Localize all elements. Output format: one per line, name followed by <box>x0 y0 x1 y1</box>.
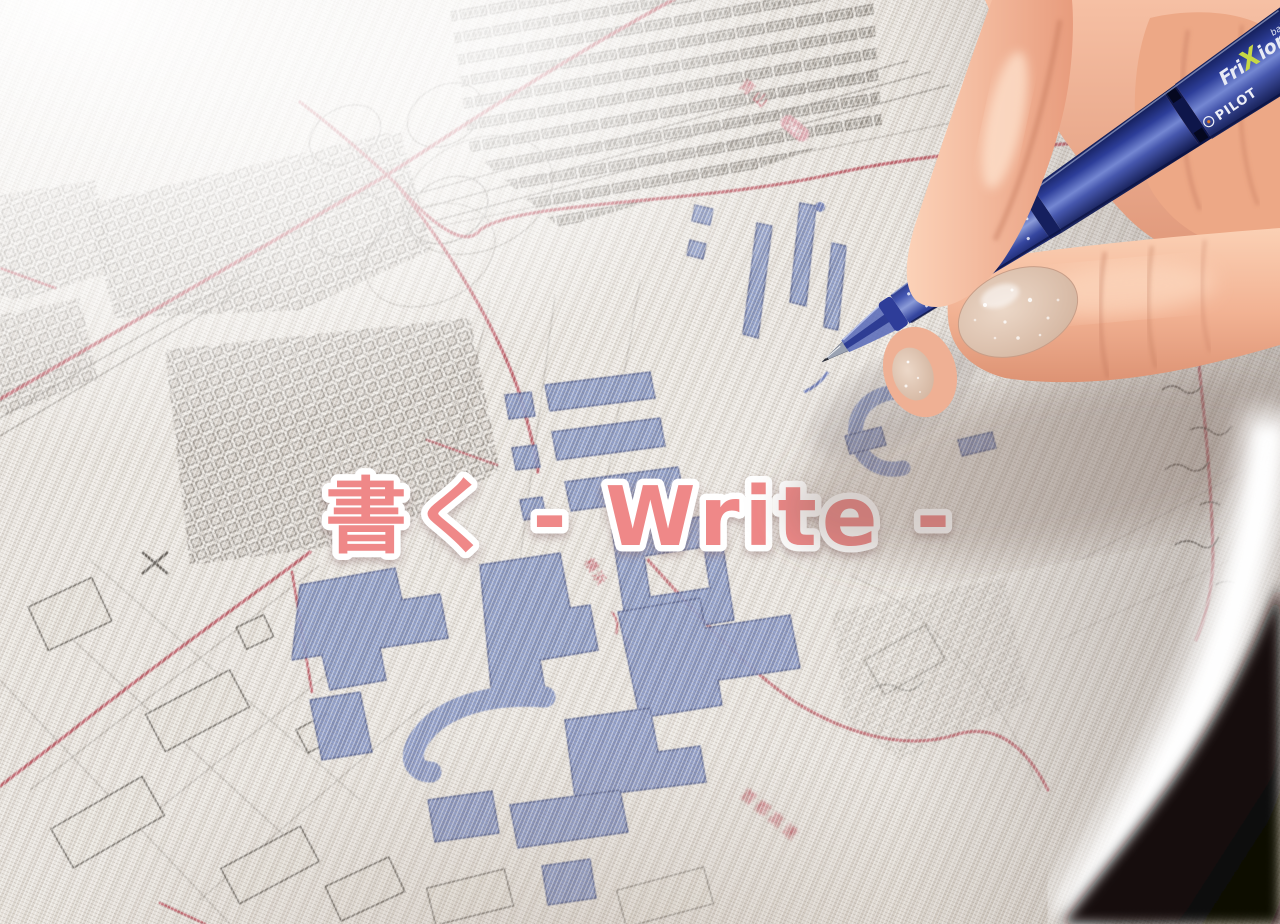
map-roads-red <box>0 0 1213 924</box>
photo-write-scene: 青山 246 横浜 首都高速 <box>0 0 1280 924</box>
lighting-overlay <box>0 0 1280 924</box>
hand-shadow <box>770 342 1280 593</box>
pen-grip-speckles <box>902 206 1041 316</box>
pen-collar <box>877 295 909 332</box>
map-outlined-buildings <box>28 552 945 924</box>
hand <box>872 0 1280 427</box>
pen-shadow <box>794 320 997 481</box>
nail-glitter <box>974 289 1060 340</box>
fabric-weave-texture <box>0 0 1280 924</box>
map-label-district: 横浜 <box>581 556 610 589</box>
dark-background-corner <box>1062 585 1280 924</box>
nail-glitter-small <box>905 361 922 393</box>
pen-model-frixion: FriXion <box>1211 22 1280 90</box>
pen-ring <box>1021 188 1063 241</box>
pen-tip-cone <box>837 305 897 359</box>
map-label-route-number: 246 <box>782 119 804 140</box>
thumb <box>907 0 1073 307</box>
index-finger <box>948 228 1280 382</box>
hand-and-pen: PILOT FriXion ball <box>0 0 1280 924</box>
index-finger-nail <box>945 250 1091 374</box>
map-colored-buildings-blue <box>292 202 996 905</box>
map-route-shield: 246 <box>778 112 812 144</box>
palm <box>985 0 1280 261</box>
map-red-labels: 青山 246 横浜 首都高速 <box>581 76 812 846</box>
fabric-background <box>0 0 1280 924</box>
fabric-edge <box>0 0 1280 924</box>
map-text-squiggles <box>870 337 1235 690</box>
folded-fingers <box>1135 12 1280 247</box>
map-label-route-area: 青山 <box>735 76 774 113</box>
title-overlay: 書く - Write - <box>0 0 1280 924</box>
pen-brand-pilot: PILOT <box>1213 85 1260 124</box>
map-building-clusters <box>0 0 1030 760</box>
pen-model-ball: ball <box>1269 21 1280 39</box>
middle-fingertip <box>872 317 969 427</box>
pen-dark-band <box>1164 85 1212 147</box>
pen-metal-tip <box>819 340 851 367</box>
pen-barrel <box>1030 93 1200 237</box>
pen-upper-barrel <box>1172 6 1280 143</box>
fold-highlight <box>1068 410 1272 924</box>
middle-finger-nail <box>886 342 941 406</box>
page-title: 書く - Write - <box>325 470 955 565</box>
pilot-logo-icon <box>1202 115 1216 129</box>
pen-grip <box>885 196 1050 331</box>
map-print: 青山 246 横浜 首都高速 <box>0 0 1280 924</box>
pen-branding: PILOT FriXion ball <box>1180 19 1280 132</box>
map-label-highway: 首都高速 <box>737 786 803 845</box>
frixion-pen: PILOT FriXion ball <box>801 6 1280 393</box>
map-roads-gray <box>0 61 1245 924</box>
